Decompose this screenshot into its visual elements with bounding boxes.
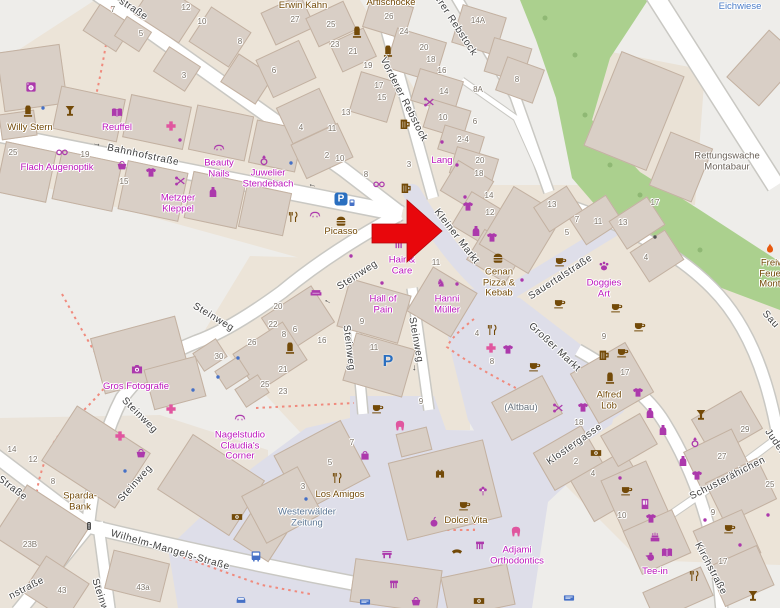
location-marker-arrow (0, 0, 780, 608)
map-canvas[interactable]: ♞PP→→→→ BahnhofstraßestraßeVorderer Rebs… (0, 0, 780, 608)
